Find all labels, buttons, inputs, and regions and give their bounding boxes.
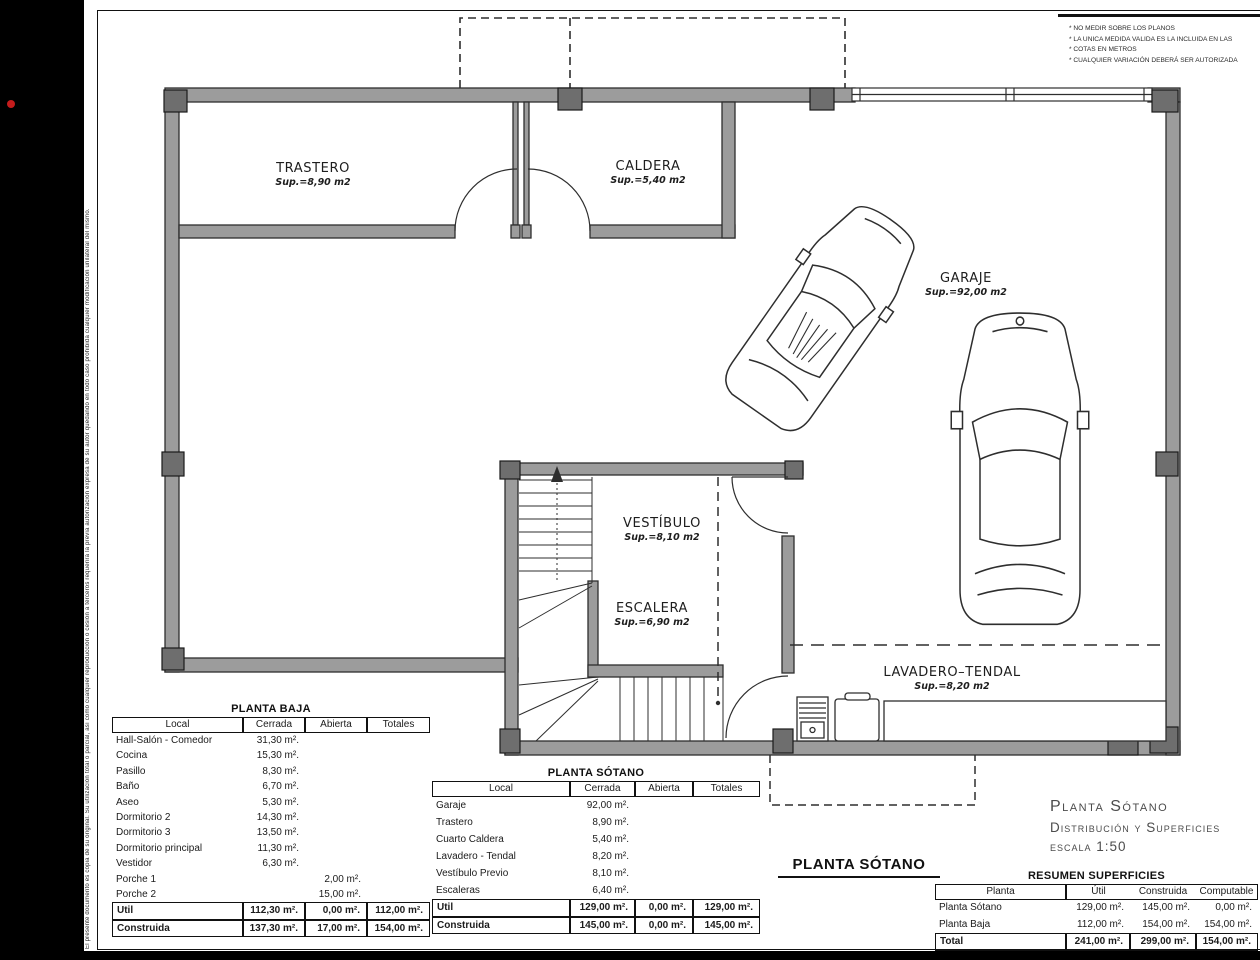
- table-cell: Abierta: [635, 781, 693, 797]
- table-cell: 129,00 m².: [1066, 900, 1130, 917]
- table-row: Aseo5,30 m².: [112, 795, 430, 810]
- table-row: Cuarto Caldera5,40 m².: [432, 831, 760, 848]
- table-cell: 112,00 m².: [1066, 917, 1130, 934]
- table-cell: Planta: [935, 884, 1066, 900]
- table-cell: 17,00 m².: [305, 920, 367, 938]
- table-row: Baño6,70 m².: [112, 779, 430, 794]
- table-cell: [305, 764, 367, 779]
- title-block: Planta Sótano Distribución y Superficies…: [1050, 798, 1220, 854]
- table-cell: [305, 748, 367, 763]
- upper-floor-dashed-outline: [460, 18, 845, 88]
- table-cell: 145,00 m².: [693, 917, 760, 935]
- table-row: Pasillo8,30 m².: [112, 764, 430, 779]
- table-row: Construida145,00 m².0,00 m².145,00 m².: [432, 917, 760, 935]
- table-cell: [367, 764, 430, 779]
- table-cell: [367, 872, 430, 887]
- table-cell: [635, 848, 693, 865]
- title-line-1: Planta Sótano: [1050, 798, 1220, 816]
- table-row: Planta Baja112,00 m².154,00 m².154,00 m²…: [935, 917, 1258, 934]
- car-2: [951, 313, 1089, 624]
- table-cell: Totales: [693, 781, 760, 797]
- table-cell: 6,30 m².: [243, 856, 305, 871]
- table-cell: [243, 887, 305, 902]
- table-cell: 8,20 m².: [570, 848, 635, 865]
- table-cell: Hall-Salón - Comedor: [112, 733, 243, 748]
- room-label-vestibulo: VESTÍBULO: [623, 515, 701, 531]
- car-1: [712, 188, 936, 443]
- table-cell: Planta Baja: [935, 917, 1066, 934]
- table-row: Escaleras6,40 m².: [432, 882, 760, 899]
- table-cell: 154,00 m².: [1196, 917, 1258, 934]
- laundry-sink-icon: [835, 699, 879, 741]
- room-label-garaje: GARAJE: [940, 271, 992, 286]
- planta-baja-table-title: PLANTA BAJA: [112, 703, 430, 715]
- room-label-caldera: CALDERA: [615, 159, 680, 174]
- table-row: Construida137,30 m².17,00 m².154,00 m².: [112, 920, 430, 938]
- table-cell: Aseo: [112, 795, 243, 810]
- table-row: Garaje92,00 m².: [432, 797, 760, 814]
- title-line-2: Distribución y Superficies: [1050, 820, 1220, 835]
- room-label-escalera: ESCALERA: [616, 601, 688, 616]
- table-cell: 0,00 m².: [635, 917, 693, 935]
- table-cell: [367, 795, 430, 810]
- table-cell: Trastero: [432, 814, 570, 831]
- table-row: PlantaÚtilConstruidaComputable: [935, 884, 1258, 900]
- table-cell: [305, 733, 367, 748]
- table-cell: Local: [432, 781, 570, 797]
- table-cell: Vestidor: [112, 856, 243, 871]
- table-row: LocalCerradaAbiertaTotales: [112, 717, 430, 733]
- room-label-lavadero: LAVADERO–TENDAL: [883, 665, 1021, 680]
- table-cell: Baño: [112, 779, 243, 794]
- table-cell: Local: [112, 717, 243, 733]
- table-cell: 145,00 m².: [570, 917, 635, 935]
- table-cell: 14,30 m².: [243, 810, 305, 825]
- table-cell: 8,30 m².: [243, 764, 305, 779]
- table-cell: [693, 797, 760, 814]
- table-row: Porche 215,00 m².: [112, 887, 430, 902]
- table-cell: [305, 856, 367, 871]
- table-cell: [367, 841, 430, 856]
- table-cell: [693, 865, 760, 882]
- table-cell: 6,40 m².: [570, 882, 635, 899]
- table-row: Hall-Salón - Comedor31,30 m².: [112, 733, 430, 748]
- table-row: Util112,30 m².0,00 m².112,00 m².: [112, 902, 430, 920]
- room-area-vestibulo: Sup.=8,10 m2: [624, 532, 700, 543]
- table-cell: Construida: [432, 917, 570, 935]
- room-area-trastero: Sup.=8,90 m2: [275, 177, 351, 188]
- table-cell: 92,00 m².: [570, 797, 635, 814]
- table-cell: [305, 825, 367, 840]
- planta-baja-table: LocalCerradaAbiertaTotalesHall-Salón - C…: [112, 717, 430, 937]
- table-cell: 8,90 m².: [570, 814, 635, 831]
- table-cell: Computable: [1196, 884, 1258, 900]
- table-row: Vestíbulo Previo8,10 m².: [432, 865, 760, 882]
- table-cell: Lavadero - Tendal: [432, 848, 570, 865]
- room-area-garaje: Sup.=92,00 m2: [925, 287, 1007, 298]
- table-cell: 13,50 m².: [243, 825, 305, 840]
- table-cell: 15,00 m².: [305, 887, 367, 902]
- table-cell: 5,30 m².: [243, 795, 305, 810]
- table-cell: [635, 797, 693, 814]
- table-cell: Dormitorio 2: [112, 810, 243, 825]
- table-cell: [693, 882, 760, 899]
- table-cell: Dormitorio principal: [112, 841, 243, 856]
- table-cell: [635, 831, 693, 848]
- room-area-escalera: Sup.=6,90 m2: [614, 617, 690, 628]
- table-cell: [305, 779, 367, 794]
- table-cell: Abierta: [305, 717, 367, 733]
- table-cell: Porche 2: [112, 887, 243, 902]
- table-row: Lavadero - Tendal8,20 m².: [432, 848, 760, 865]
- table-cell: [367, 825, 430, 840]
- table-cell: Util: [112, 902, 243, 920]
- table-row: Util129,00 m².0,00 m².129,00 m².: [432, 899, 760, 917]
- table-cell: [305, 810, 367, 825]
- table-cell: 31,30 m².: [243, 733, 305, 748]
- table-cell: Cocina: [112, 748, 243, 763]
- table-cell: [635, 882, 693, 899]
- table-cell: Cerrada: [243, 717, 305, 733]
- page: El presente documento es copia de su ori…: [0, 0, 1260, 960]
- counter: [884, 701, 1166, 741]
- table-row: Cocina15,30 m².: [112, 748, 430, 763]
- table-row: Dormitorio 313,50 m².: [112, 825, 430, 840]
- table-cell: 154,00 m².: [367, 920, 430, 938]
- table-cell: 241,00 m².: [1066, 933, 1130, 951]
- table-cell: 0,00 m².: [635, 899, 693, 917]
- planta-sotano-table-title: PLANTA SÓTANO: [432, 767, 760, 779]
- table-cell: Pasillo: [112, 764, 243, 779]
- table-cell: 2,00 m².: [305, 872, 367, 887]
- table-cell: 112,00 m².: [367, 902, 430, 920]
- table-cell: 11,30 m².: [243, 841, 305, 856]
- table-cell: Dormitorio 3: [112, 825, 243, 840]
- table-cell: [367, 733, 430, 748]
- planta-sotano-table: LocalCerradaAbiertaTotalesGaraje92,00 m²…: [432, 781, 760, 934]
- table-cell: Cerrada: [570, 781, 635, 797]
- table-row: Planta Sótano129,00 m².145,00 m².0,00 m²…: [935, 900, 1258, 917]
- table-cell: 8,10 m².: [570, 865, 635, 882]
- table-cell: [693, 848, 760, 865]
- table-cell: 112,30 m².: [243, 902, 305, 920]
- table-row: Dormitorio 214,30 m².: [112, 810, 430, 825]
- resumen-table-title: RESUMEN SUPERFICIES: [935, 870, 1258, 882]
- table-cell: 129,00 m².: [570, 899, 635, 917]
- table-row: LocalCerradaAbiertaTotales: [432, 781, 760, 797]
- table-cell: [635, 865, 693, 882]
- room-label-trastero: TRASTERO: [275, 161, 350, 176]
- table-cell: Total: [935, 933, 1066, 951]
- table-cell: Construida: [1130, 884, 1196, 900]
- table-cell: 0,00 m².: [1196, 900, 1258, 917]
- table-cell: [367, 748, 430, 763]
- table-cell: Planta Sótano: [935, 900, 1066, 917]
- table-cell: [243, 872, 305, 887]
- table-row: Trastero8,90 m².: [432, 814, 760, 831]
- table-cell: Porche 1: [112, 872, 243, 887]
- table-row: Total241,00 m².299,00 m².154,00 m².: [935, 933, 1258, 951]
- garage-window: [852, 88, 1152, 101]
- table-row: Dormitorio principal11,30 m².: [112, 841, 430, 856]
- table-cell: [367, 887, 430, 902]
- table-cell: [305, 795, 367, 810]
- plan-name-label: PLANTA SÓTANO: [778, 856, 940, 878]
- table-cell: 299,00 m².: [1130, 933, 1196, 951]
- table-cell: 137,30 m².: [243, 920, 305, 938]
- table-cell: 154,00 m².: [1196, 933, 1258, 951]
- table-cell: [305, 841, 367, 856]
- resumen-superficies-table: PlantaÚtilConstruidaComputablePlanta Sót…: [935, 884, 1258, 951]
- table-cell: 154,00 m².: [1130, 917, 1196, 934]
- room-area-caldera: Sup.=5,40 m2: [610, 175, 686, 186]
- table-cell: 15,30 m².: [243, 748, 305, 763]
- table-cell: Construida: [112, 920, 243, 938]
- table-cell: Totales: [367, 717, 430, 733]
- laundry-appliances-group: [797, 693, 1166, 741]
- table-cell: [635, 814, 693, 831]
- table-cell: [367, 810, 430, 825]
- title-line-3: escala 1:50: [1050, 839, 1220, 854]
- table-row: Porche 12,00 m².: [112, 872, 430, 887]
- table-cell: 129,00 m².: [693, 899, 760, 917]
- table-cell: [693, 814, 760, 831]
- room-area-lavadero: Sup.=8,20 m2: [914, 681, 990, 692]
- table-cell: Cuarto Caldera: [432, 831, 570, 848]
- table-cell: Escaleras: [432, 882, 570, 899]
- table-cell: 6,70 m².: [243, 779, 305, 794]
- table-cell: Útil: [1066, 884, 1130, 900]
- table-cell: Util: [432, 899, 570, 917]
- table-cell: [367, 779, 430, 794]
- table-cell: [693, 831, 760, 848]
- table-cell: 0,00 m².: [305, 902, 367, 920]
- table-row: Vestidor6,30 m².: [112, 856, 430, 871]
- table-cell: 145,00 m².: [1130, 900, 1196, 917]
- table-cell: 5,40 m².: [570, 831, 635, 848]
- table-cell: Vestíbulo Previo: [432, 865, 570, 882]
- table-cell: Garaje: [432, 797, 570, 814]
- table-cell: [367, 856, 430, 871]
